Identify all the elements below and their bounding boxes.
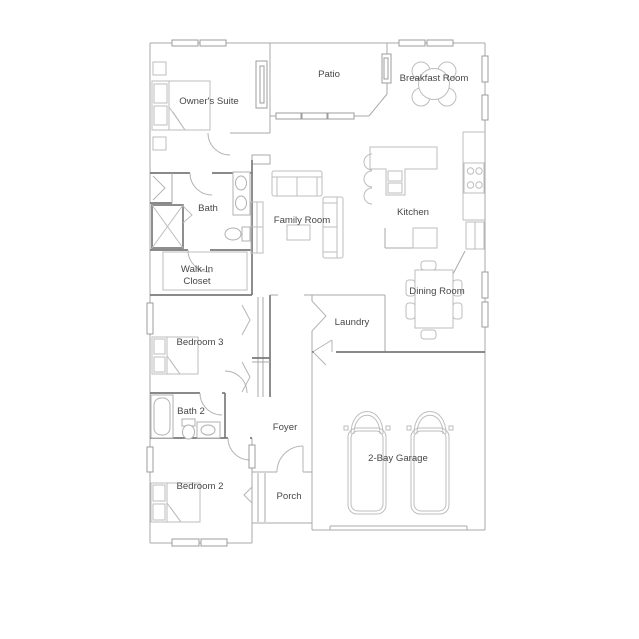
breakfast-table-set	[412, 62, 456, 106]
double-vanity	[233, 172, 250, 215]
base-cabinet	[413, 228, 437, 248]
room-label-owners-suite: Owner's Suite	[179, 96, 238, 107]
bar-stool	[364, 188, 372, 204]
room-label-garage: 2-Bay Garage	[368, 453, 428, 464]
room-label-walkin-line2: Closet	[183, 276, 211, 287]
dining-table	[415, 270, 453, 328]
nightstand	[153, 62, 166, 75]
bathtub	[151, 395, 173, 438]
room-label-kitchen: Kitchen	[397, 207, 429, 218]
room-label-porch: Porch	[276, 491, 301, 502]
room-label-bedroom3: Bedroom 3	[177, 337, 224, 348]
counter-with-range	[463, 132, 485, 220]
shower	[152, 205, 192, 248]
room-label-dining-room: Dining Room	[409, 286, 464, 297]
floor-plan: Owner's Suite Patio Breakfast Room Bath …	[0, 0, 639, 639]
sink-vanity	[197, 422, 220, 438]
floor-plan-page: Owner's Suite Patio Breakfast Room Bath …	[0, 0, 639, 639]
room-label-family-room: Family Room	[274, 215, 331, 226]
room-label-patio: Patio	[318, 69, 340, 80]
room-label-bath2: Bath 2	[177, 406, 205, 417]
bar-stool	[364, 171, 372, 187]
toilet	[182, 419, 195, 439]
room-label-foyer: Foyer	[273, 422, 298, 433]
kitchen-fixtures	[364, 132, 485, 249]
toilet	[225, 227, 250, 241]
coffee-table	[287, 225, 310, 240]
bath2-fixtures	[151, 395, 220, 439]
loveseat	[323, 197, 343, 258]
room-label-laundry: Laundry	[335, 317, 370, 328]
bar-stool	[364, 154, 372, 170]
room-label-bedroom2: Bedroom 2	[177, 481, 224, 492]
room-label-breakfast: Breakfast Room	[400, 73, 469, 84]
range	[464, 163, 484, 193]
nightstand	[153, 137, 166, 150]
kitchen-island	[364, 147, 437, 204]
room-label-walkin-line1: Walk-In	[181, 264, 213, 275]
sofa	[272, 171, 322, 196]
refrigerator	[466, 222, 484, 249]
room-label-bath: Bath	[198, 203, 218, 214]
